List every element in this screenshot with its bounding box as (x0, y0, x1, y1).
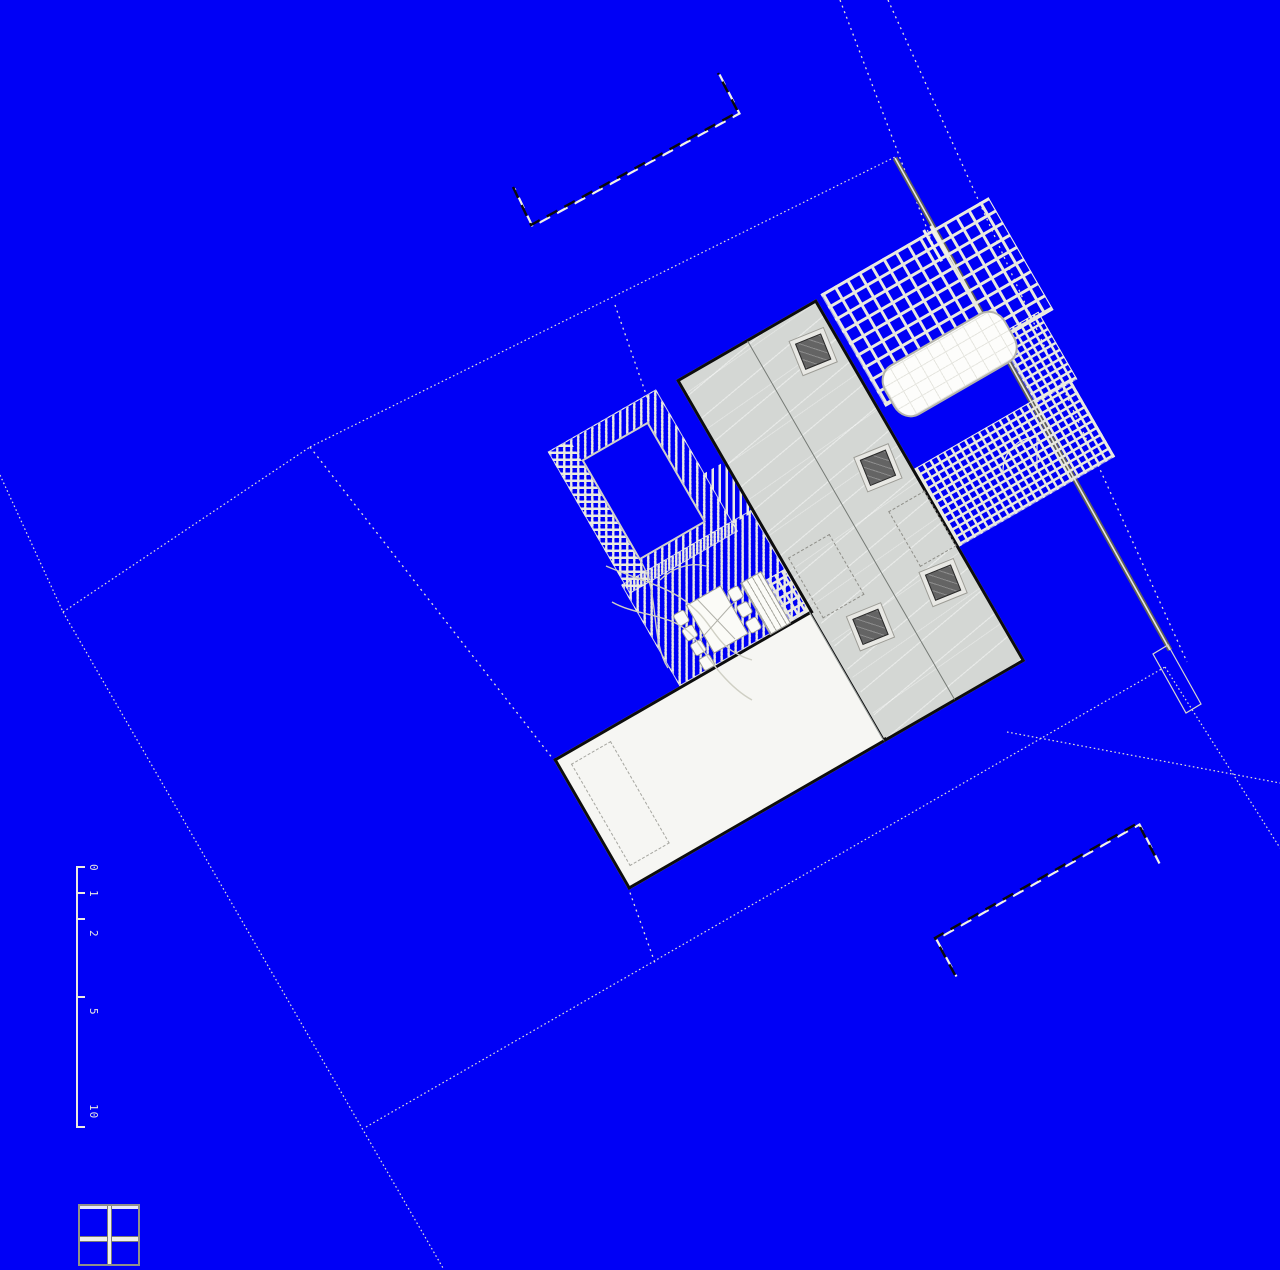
neighbor-building-outline-bottom (935, 823, 1160, 977)
scale-label: 0 (87, 864, 100, 872)
scale-tick (76, 1126, 85, 1128)
plant-squiggle (606, 566, 752, 660)
scale-tick (76, 866, 85, 868)
scale-label: 10 (87, 1104, 100, 1119)
window-grid-icon (78, 1204, 140, 1266)
gate-swing (1003, 437, 1037, 471)
scale-tick (76, 918, 85, 920)
neighbor-building-outline-top (513, 73, 740, 227)
scale-tick (76, 996, 85, 998)
plant-squiggles (606, 560, 752, 700)
neighbor-dash-black (935, 823, 1158, 975)
scale-label: 5 (87, 1008, 100, 1016)
neighbor-dash-black (513, 73, 738, 225)
neighbor-dash-white (937, 825, 1160, 977)
site-plan-canvas: 0 1 2 5 10 (0, 0, 1280, 1270)
gate-arc (1003, 437, 1037, 471)
scale-label: 1 (87, 890, 100, 898)
window-icon-vertical-bar (107, 1206, 112, 1264)
scale-tick (76, 892, 85, 894)
table-diagonal (697, 599, 735, 639)
scale-label: 2 (87, 930, 100, 938)
plant-squiggle (660, 565, 706, 580)
neighbor-dash-white (515, 75, 740, 227)
annotation-layer (0, 0, 1280, 1270)
